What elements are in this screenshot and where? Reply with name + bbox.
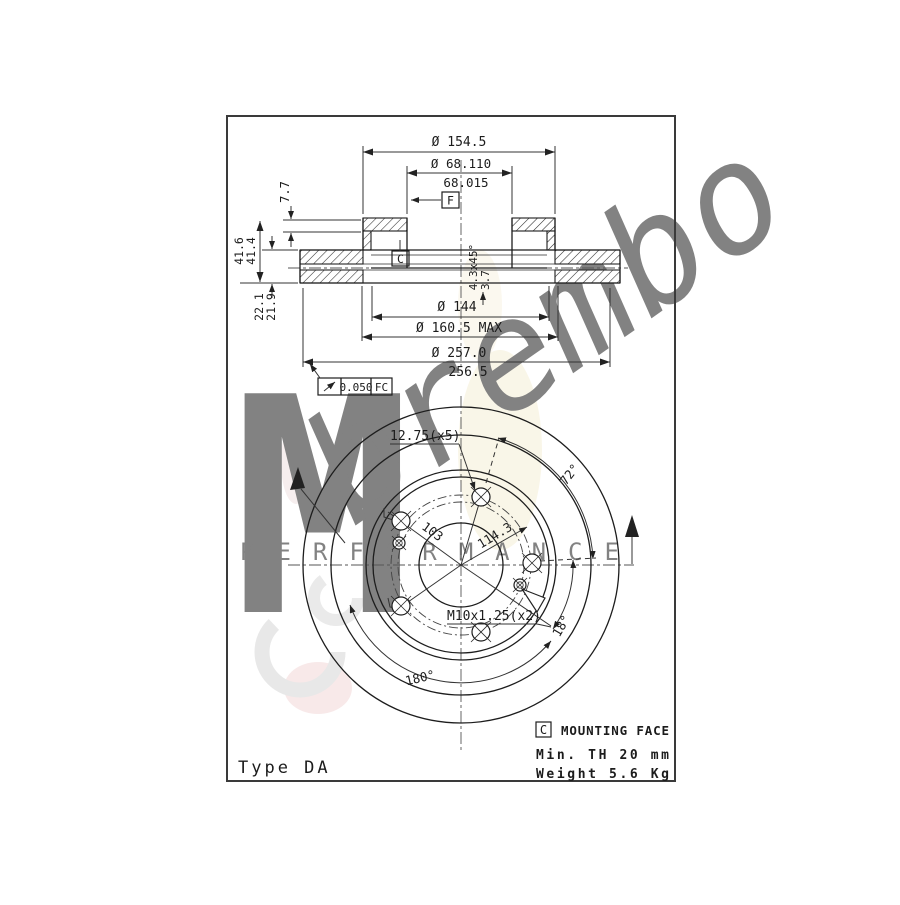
thread-label: M10x1.25(x2) bbox=[447, 609, 541, 624]
dim-height-lower: 41.4 bbox=[244, 237, 258, 265]
dim-bore-lower: 68.015 bbox=[443, 175, 488, 190]
dim-hat-outer: Ø 154.5 bbox=[432, 135, 487, 150]
note-datum-label: C bbox=[540, 723, 547, 737]
bolt-dia-label: 12.75(x5) bbox=[390, 429, 460, 444]
datum-f: F bbox=[411, 192, 459, 208]
bolt-hole bbox=[471, 487, 491, 507]
watermark-performance-text: PERFORMANCE bbox=[240, 538, 641, 566]
angle-18-label: 18° bbox=[549, 612, 573, 639]
bolt-hole bbox=[471, 622, 491, 642]
note-mounting-face: MOUNTING FACE bbox=[561, 723, 669, 738]
datum-c-label: C bbox=[397, 252, 404, 266]
note-min-th: Min. TH 20 mm bbox=[536, 748, 669, 763]
mounting-note: C MOUNTING FACE Min. TH 20 mm Weight 5.6… bbox=[536, 722, 669, 782]
dim-thickness-lower: 21.9 bbox=[264, 293, 278, 321]
bolt-hole bbox=[391, 511, 411, 531]
technical-drawing: M brembo PERFORMANCE bbox=[0, 0, 900, 900]
dim-max: Ø 160.5 MAX bbox=[416, 321, 502, 336]
dim-outer-upper: Ø 257.0 bbox=[432, 346, 487, 361]
dim-step: 3.7 bbox=[479, 270, 492, 290]
note-weight: Weight 5.6 Kg bbox=[536, 767, 669, 782]
datum-f-label: F bbox=[447, 194, 454, 208]
bolt-hole bbox=[522, 553, 542, 573]
dim-inner: Ø 144 bbox=[437, 300, 476, 315]
angle-72-label: 72° bbox=[557, 461, 583, 488]
runout-value: 0.050 bbox=[339, 381, 372, 394]
runout-suffix: FC bbox=[375, 381, 388, 394]
type-label: Type DA bbox=[238, 758, 331, 778]
dim-bore-upper: Ø 68.110 bbox=[431, 156, 491, 171]
dim-outer-lower: 256.5 bbox=[448, 365, 487, 380]
threaded-hole bbox=[392, 536, 406, 550]
thread-callout: M10x1.25(x2) bbox=[447, 589, 551, 627]
bolt-hole bbox=[391, 596, 411, 616]
dim-offset: 7.7 bbox=[278, 181, 292, 203]
brake-disc-drawing-page: M brembo PERFORMANCE bbox=[0, 0, 900, 900]
